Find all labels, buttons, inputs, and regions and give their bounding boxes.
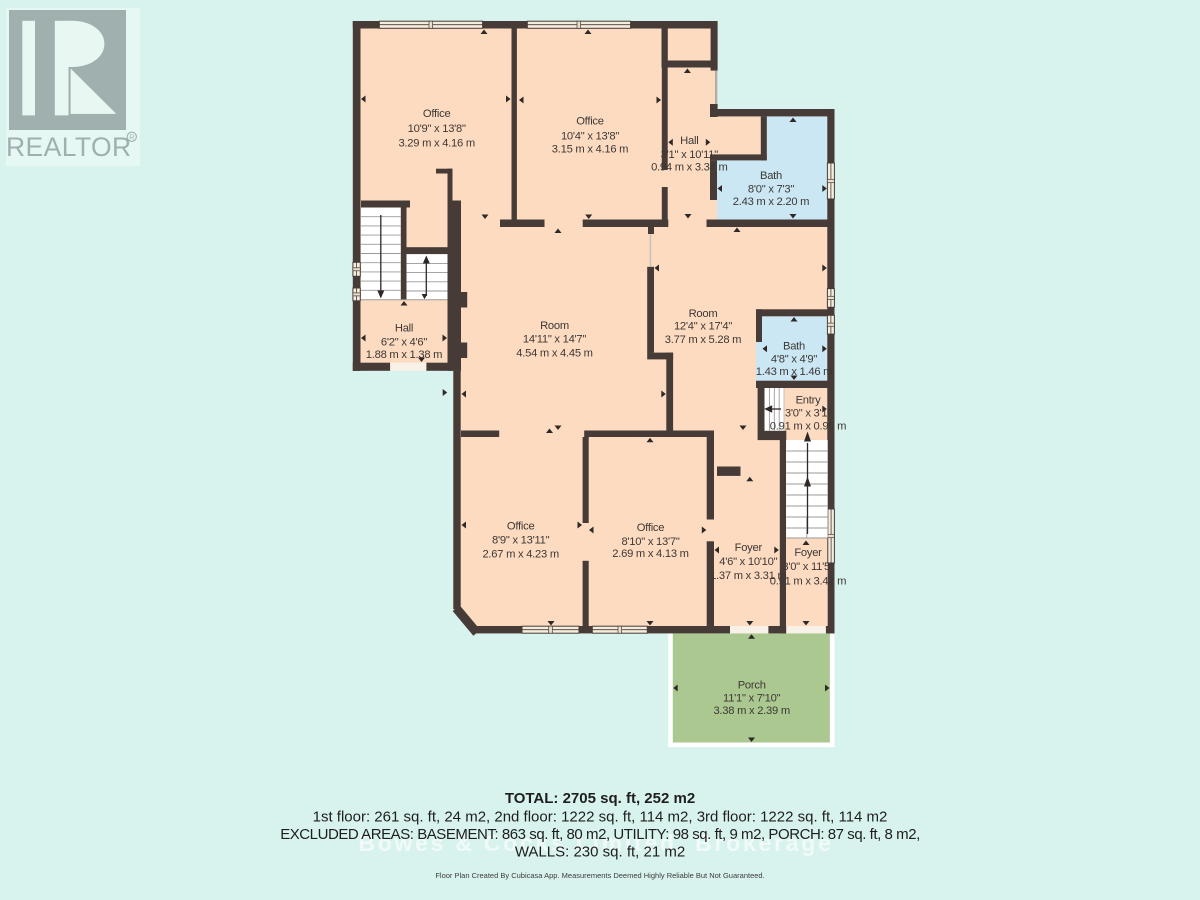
svg-text:1st floor: 261 sq. ft, 24 m2,: 1st floor: 261 sq. ft, 24 m2, 2nd floor:… xyxy=(313,808,888,825)
svg-text:10'9" x 13'8": 10'9" x 13'8" xyxy=(408,123,466,135)
svg-text:3.29 m x 4.16 m: 3.29 m x 4.16 m xyxy=(398,137,474,149)
svg-text:3'0" x 3'1": 3'0" x 3'1" xyxy=(785,407,831,419)
svg-text:Foyer: Foyer xyxy=(735,542,763,554)
svg-text:0.91 m x 3.47 m: 0.91 m x 3.47 m xyxy=(770,575,846,587)
svg-text:TOTAL: 2705 sq. ft, 252 m2: TOTAL: 2705 sq. ft, 252 m2 xyxy=(505,790,695,807)
svg-text:Floor Plan Created By Cubicasa: Floor Plan Created By Cubicasa App. Meas… xyxy=(435,871,764,880)
svg-text:Hall: Hall xyxy=(680,135,698,147)
svg-text:4.54 m x 4.45 m: 4.54 m x 4.45 m xyxy=(516,347,592,359)
svg-text:0.94 m x 3.34 m: 0.94 m x 3.34 m xyxy=(651,162,727,174)
svg-text:4'8" x 4'9": 4'8" x 4'9" xyxy=(771,353,817,365)
svg-text:8'10" x 13'7": 8'10" x 13'7" xyxy=(621,536,679,548)
svg-text:Room: Room xyxy=(689,308,718,320)
svg-text:Foyer: Foyer xyxy=(794,547,822,559)
svg-text:Room: Room xyxy=(540,320,569,332)
svg-text:8'0" x 7'3": 8'0" x 7'3" xyxy=(748,184,794,196)
svg-text:3.15 m x 4.16 m: 3.15 m x 4.16 m xyxy=(552,144,628,156)
svg-text:11'1" x 7'10": 11'1" x 7'10" xyxy=(723,693,781,705)
svg-text:14'11" x 14'7": 14'11" x 14'7" xyxy=(523,334,587,346)
svg-text:R: R xyxy=(129,135,134,142)
svg-text:6'2" x 4'6": 6'2" x 4'6" xyxy=(381,336,427,348)
svg-text:1.88 m x 1.38 m: 1.88 m x 1.38 m xyxy=(366,349,442,361)
svg-text:Office: Office xyxy=(637,522,665,534)
svg-text:2.43 m x 2.20 m: 2.43 m x 2.20 m xyxy=(733,196,809,208)
svg-text:3'0" x 11'5": 3'0" x 11'5" xyxy=(782,561,834,573)
svg-text:12'4" x 17'4": 12'4" x 17'4" xyxy=(674,321,732,333)
svg-text:3.38 m x 2.39 m: 3.38 m x 2.39 m xyxy=(713,705,789,717)
svg-text:1.43 m x 1.46 m: 1.43 m x 1.46 m xyxy=(756,366,832,378)
svg-text:Bath: Bath xyxy=(783,341,805,353)
svg-text:WALLS: 230 sq. ft, 21 m2: WALLS: 230 sq. ft, 21 m2 xyxy=(515,843,685,860)
svg-text:3'1" x 10'11": 3'1" x 10'11" xyxy=(661,149,719,161)
svg-text:Office: Office xyxy=(576,116,604,128)
svg-text:Office: Office xyxy=(507,521,535,533)
svg-text:Bath: Bath xyxy=(760,170,782,182)
svg-text:10'4" x 13'8": 10'4" x 13'8" xyxy=(561,130,619,142)
svg-text:8'9" x 13'11": 8'9" x 13'11" xyxy=(492,534,550,546)
svg-text:REALTOR: REALTOR xyxy=(6,132,132,162)
svg-text:Entry: Entry xyxy=(796,394,822,406)
svg-text:2.67 m x 4.23 m: 2.67 m x 4.23 m xyxy=(482,548,558,560)
svg-text:3.77 m x 5.28 m: 3.77 m x 5.28 m xyxy=(665,334,741,346)
svg-text:0.91 m x 0.95 m: 0.91 m x 0.95 m xyxy=(770,420,846,432)
svg-text:Porch: Porch xyxy=(738,680,766,692)
svg-text:2.69 m x 4.13 m: 2.69 m x 4.13 m xyxy=(612,548,688,560)
svg-text:EXCLUDED AREAS: BASEMENT: 863: EXCLUDED AREAS: BASEMENT: 863 sq. ft, 80… xyxy=(280,826,920,843)
svg-text:Office: Office xyxy=(423,108,451,120)
svg-text:4'6" x 10'10": 4'6" x 10'10" xyxy=(719,556,777,568)
svg-text:Hall: Hall xyxy=(395,322,413,334)
